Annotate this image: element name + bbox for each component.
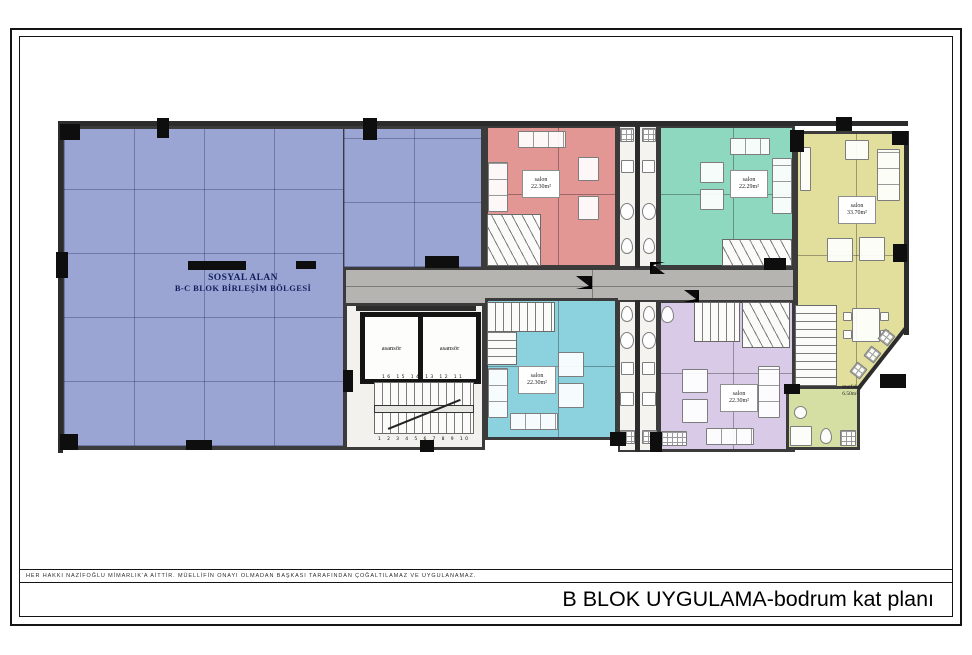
stair-numbers-top: 16 15 14 13 12 11 <box>382 375 464 380</box>
column-marker <box>425 256 459 268</box>
sofa <box>518 131 566 148</box>
kitchen-sink <box>642 362 655 375</box>
sofa <box>488 162 508 212</box>
room-area: 22.30m² <box>527 380 547 388</box>
column-marker <box>343 370 353 392</box>
column-marker <box>784 384 800 394</box>
sofa <box>758 366 780 418</box>
room-area: 22.30m² <box>531 184 551 192</box>
room-name: salon <box>743 177 756 185</box>
armchair <box>682 399 708 423</box>
sofa <box>730 138 770 155</box>
column-marker <box>892 131 908 145</box>
salon-purple-label: salon 22.30m² <box>720 384 758 412</box>
room-name: salon <box>535 177 548 185</box>
column-marker <box>56 252 68 278</box>
salon-red-label: salon 22.30m² <box>522 170 560 198</box>
kitchen-label: mutfak 6.50m² <box>833 384 867 397</box>
dining-table <box>852 308 880 342</box>
unit-stair-purple-right <box>742 302 790 348</box>
unit-stair-purple-left <box>694 302 740 342</box>
counter <box>620 392 634 406</box>
washbasin <box>620 332 634 349</box>
stair-landing <box>374 405 474 413</box>
room-name: salon <box>733 391 746 399</box>
social-area-label-line1: SOSYAL ALAN <box>143 273 343 283</box>
shower <box>790 426 812 446</box>
sofa <box>877 149 900 201</box>
armchair <box>700 162 724 183</box>
room-area: 33.70m² <box>847 210 867 218</box>
toilet <box>820 428 832 444</box>
column-marker <box>650 432 662 452</box>
door-swing-marker <box>576 276 592 289</box>
kitchen-counter <box>840 430 856 446</box>
armchair <box>845 140 869 160</box>
column-marker <box>836 117 852 131</box>
unit-stair-cyan-upper <box>487 302 555 332</box>
washbasin <box>794 406 807 419</box>
room-area: 22.30m² <box>729 398 749 406</box>
counter <box>642 392 656 406</box>
room-name: salon <box>851 203 864 211</box>
drawing-sheet: SOSYAL ALAN B-C BLOK BİRLEŞİM BÖLGESİ as… <box>0 0 972 655</box>
armchair <box>578 157 599 181</box>
washbasin <box>620 203 634 220</box>
toilet <box>643 238 655 254</box>
column-marker <box>880 374 906 388</box>
sofa <box>706 428 754 445</box>
dining-chair <box>880 312 889 321</box>
column-marker <box>60 434 78 450</box>
column-marker <box>188 261 246 270</box>
kitchen-sink <box>621 160 634 173</box>
salon-cyan-label: salon 22.30m² <box>518 366 556 394</box>
elevator-left-label: asansör <box>382 345 402 352</box>
dining-chair <box>843 312 852 321</box>
armchair <box>859 237 885 261</box>
social-area-label: SOSYAL ALAN B-C BLOK BİRLEŞİM BÖLGESİ <box>143 273 343 293</box>
armchair <box>578 196 599 220</box>
washbasin <box>642 203 656 220</box>
column-marker <box>296 261 316 269</box>
unit-stair-cyan-lower <box>487 331 517 365</box>
counter <box>800 147 811 191</box>
sheet-title: B BLOK UYGULAMA-bodrum kat planı <box>562 587 934 612</box>
toilet <box>621 238 633 254</box>
column-marker <box>893 244 907 262</box>
kitchen-sink <box>642 160 655 173</box>
stove <box>642 128 656 142</box>
stove <box>620 128 634 142</box>
armchair <box>700 189 724 210</box>
sofa <box>510 413 558 430</box>
column-marker <box>420 440 434 452</box>
armchair <box>558 352 584 377</box>
column-marker <box>764 258 786 270</box>
armchair <box>558 383 584 408</box>
perimeter-wall-top <box>58 121 908 126</box>
salon-yellow-label: salon 33.70m² <box>838 196 876 224</box>
washbasin <box>642 332 656 349</box>
salon-green-label: salon 22.29m² <box>730 170 768 198</box>
toilet <box>661 306 674 323</box>
toilet <box>621 306 633 322</box>
column-marker <box>186 440 212 450</box>
column-marker <box>790 130 804 152</box>
door-swing-marker <box>684 290 699 302</box>
perimeter-wall-left <box>58 121 63 453</box>
kitchen-name: mutfak <box>842 384 858 390</box>
strip-top-divider-wall <box>635 125 640 268</box>
copyright-strip: HER HAKKI NAZİFOĞLU MİMARLIK'A AİTTİR. M… <box>20 569 952 583</box>
kitchen-area: 6.50m² <box>842 391 858 397</box>
sofa <box>772 158 792 214</box>
room-name: salon <box>531 373 544 381</box>
title-strip: B BLOK UYGULAMA-bodrum kat planı <box>20 583 952 616</box>
armchair <box>682 369 708 393</box>
kitchen-counter <box>661 431 687 446</box>
sofa <box>488 368 508 418</box>
room-area: 22.29m² <box>739 184 759 192</box>
column-marker <box>610 432 626 446</box>
column-marker <box>363 118 377 140</box>
perimeter-wall-right <box>904 131 909 335</box>
strip-bottom-divider-wall <box>635 300 640 452</box>
column-marker <box>157 118 169 138</box>
dining-chair <box>843 330 852 339</box>
room-social-area-ext <box>344 125 485 271</box>
column-marker <box>60 124 80 140</box>
armchair <box>827 238 853 262</box>
social-area-label-line2: B-C BLOK BİRLEŞİM BÖLGESİ <box>143 283 343 293</box>
unit-stair-red <box>487 214 541 266</box>
door-swing-marker <box>650 262 665 274</box>
copyright-text: HER HAKKI NAZİFOĞLU MİMARLIK'A AİTTİR. M… <box>26 573 476 579</box>
toilet <box>643 306 655 322</box>
kitchen-sink <box>621 362 634 375</box>
elevator-shaft-right: asansör <box>418 312 481 384</box>
elevator-shaft-left: asansör <box>360 312 423 384</box>
elevator-right-label: asansör <box>440 345 460 352</box>
unit-stair-right <box>795 305 837 386</box>
core-header-wall <box>356 306 476 311</box>
